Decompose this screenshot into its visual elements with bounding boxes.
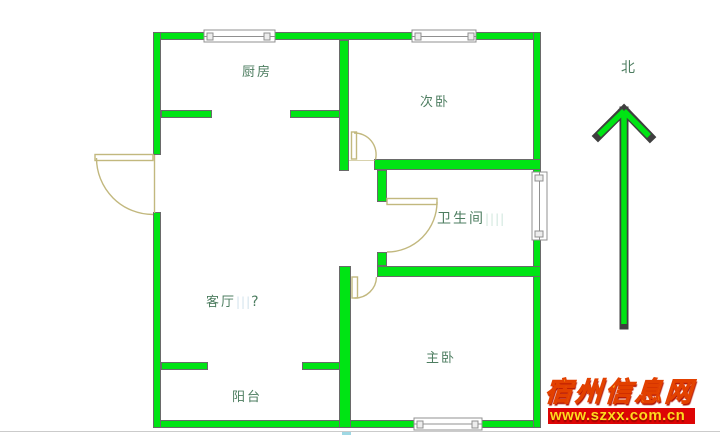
master-bedroom-label: 主卧 [426, 352, 456, 365]
north-label: 北 [621, 61, 635, 75]
wall-bedroom2-south [374, 159, 541, 170]
wall-bath-left-upper [377, 170, 387, 202]
wall-balcony-stub-left [161, 362, 208, 370]
floorplan-image: 厨房 次卧 卫生间|||| 客厅|||? 阳台 主卧 北 宿州信息网 www.s… [0, 0, 720, 436]
wall-bath-south [377, 266, 541, 277]
master-door-icon [352, 277, 377, 298]
bathroom-label: 卫生间|||| [437, 212, 505, 226]
master-bedroom-label-text: 主卧 [426, 351, 456, 366]
bathroom-door-icon [387, 199, 437, 253]
balcony-label: 阳台 [232, 391, 262, 404]
wall-kitchen-bedroom2-divider [339, 40, 349, 171]
kitchen-label: 厨房 [242, 66, 272, 79]
page-bottom-line [0, 431, 720, 432]
wall-balcony-stub-right [302, 362, 340, 370]
page-bottom-marker [342, 432, 351, 435]
entry-door-icon [95, 155, 155, 215]
watermark-site-name: 宿州信息网 [544, 378, 720, 408]
balcony-label-text: 阳台 [232, 390, 262, 405]
kitchen-label-text: 厨房 [242, 65, 272, 80]
wall-outer-left-lower [153, 212, 161, 428]
wall-outer-left-upper [153, 32, 161, 155]
plan-symbols-layer [0, 0, 720, 436]
living-room-question-mark: ? [251, 294, 258, 310]
north-arrow-icon [598, 110, 650, 325]
living-room-label: 客厅|||? [206, 295, 259, 309]
wall-outer-right [533, 32, 541, 428]
bathroom-faint-marks: |||| [485, 212, 505, 226]
bedroom2-label-text: 次卧 [420, 95, 450, 110]
bedroom2-door-icon [349, 132, 376, 161]
watermark-url: www.szxx.com.cn [550, 407, 685, 424]
wall-kitchen-south-left [161, 110, 212, 118]
wall-living-master-divider [339, 266, 351, 428]
wall-outer-top [153, 32, 541, 40]
bathroom-label-text: 卫生间 [437, 211, 485, 227]
wall-bath-left-lower [377, 252, 387, 266]
living-room-faint-marks: ||| [236, 295, 251, 309]
bedroom2-label: 次卧 [420, 96, 450, 109]
living-room-label-text: 客厅 [206, 295, 236, 310]
